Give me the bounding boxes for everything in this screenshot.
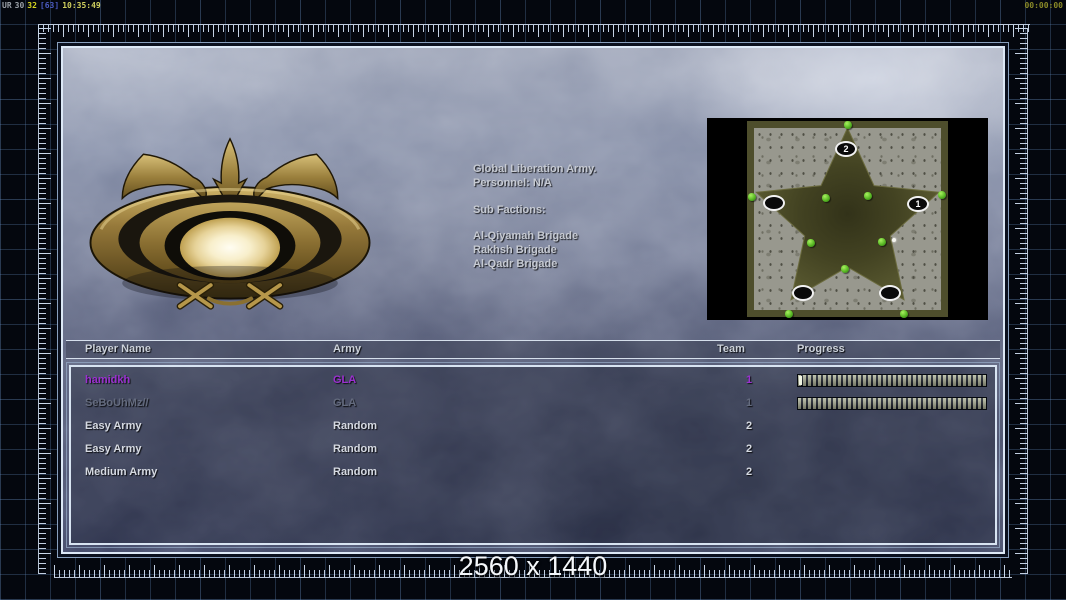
player-name: SeBoUhMz// <box>85 397 149 409</box>
player-list: hamidkh GLA 1 SeBoUhMz// GLA 1 Easy Army… <box>69 365 997 545</box>
start-position-marker <box>763 195 785 211</box>
tree-icon <box>844 121 852 129</box>
player-army: Random <box>333 466 377 478</box>
table-row: Easy Army Random 2 <box>71 415 995 438</box>
player-team: 1 <box>738 397 760 409</box>
gla-faction-logo <box>85 135 375 313</box>
player-army: GLA <box>333 374 356 386</box>
tree-icon <box>822 194 830 202</box>
match-timer: 00:00:00 <box>1024 1 1063 10</box>
table-row: hamidkh GLA 1 <box>71 369 995 392</box>
player-team: 2 <box>738 420 760 432</box>
ruler-top <box>38 24 1030 37</box>
debug-segment: UR <box>2 1 12 10</box>
loading-screen: UR3032[63]10:35:49 00:00:00 <box>0 0 1066 600</box>
debug-segment: 32 <box>27 1 37 10</box>
debug-stats-text: UR3032[63]10:35:49 <box>2 1 104 10</box>
player-army: GLA <box>333 397 356 409</box>
start-position-marker: 1 <box>907 196 929 212</box>
tree-icon <box>864 192 872 200</box>
loading-panel: Global Liberation Army. Personnel: N/A S… <box>57 42 1009 558</box>
ruler-right <box>1015 28 1028 574</box>
ruler-left <box>38 28 51 574</box>
faction-personnel: Personnel: N/A <box>473 176 596 190</box>
player-name: Easy Army <box>85 420 141 432</box>
player-list-box: hamidkh GLA 1 SeBoUhMz// GLA 1 Easy Army… <box>66 362 1000 548</box>
faction-name: Global Liberation Army. <box>473 162 596 176</box>
start-position-marker <box>879 285 901 301</box>
start-position-marker: 2 <box>835 141 857 157</box>
tree-icon <box>807 239 815 247</box>
debug-segment: 30 <box>15 1 25 10</box>
tree-icon <box>878 238 886 246</box>
tree-icon <box>900 310 908 318</box>
sub-faction: Al-Qadr Brigade <box>473 257 596 271</box>
debug-segment: 10:35:49 <box>62 1 101 10</box>
table-row: Easy Army Random 2 <box>71 438 995 461</box>
tree-icon <box>841 265 849 273</box>
table-row: Medium Army Random 2 <box>71 461 995 484</box>
sub-faction: Al-Qiyamah Brigade <box>473 229 596 243</box>
player-name: Easy Army <box>85 443 141 455</box>
player-name: Medium Army <box>85 466 157 478</box>
tree-icon <box>785 310 793 318</box>
debug-segment: [63] <box>40 1 59 10</box>
tree-icon <box>748 193 756 201</box>
tree-icon <box>938 191 946 199</box>
faction-info: Global Liberation Army. Personnel: N/A S… <box>473 162 596 271</box>
player-army: Random <box>333 443 377 455</box>
player-team: 2 <box>738 466 760 478</box>
column-progress: Progress <box>797 343 845 355</box>
sub-faction: Rakhsh Brigade <box>473 243 596 257</box>
map-center-dot <box>892 238 896 242</box>
column-player-name: Player Name <box>85 343 151 355</box>
player-name: hamidkh <box>85 374 130 386</box>
table-row: SeBoUhMz// GLA 1 <box>71 392 995 415</box>
column-army: Army <box>333 343 361 355</box>
player-team: 1 <box>738 374 760 386</box>
loading-progress-bar <box>797 374 987 387</box>
loading-progress-bar <box>797 397 987 410</box>
player-table-header: Player Name Army Team Progress <box>66 340 1000 359</box>
player-army: Random <box>333 420 377 432</box>
start-position-marker <box>792 285 814 301</box>
player-team: 2 <box>738 443 760 455</box>
loading-panel-inner: Global Liberation Army. Personnel: N/A S… <box>61 46 1005 554</box>
map-preview: 2 1 <box>707 118 988 320</box>
resolution-label: 2560 x 1440 <box>0 551 1066 582</box>
sub-factions-label: Sub Factions: <box>473 203 596 217</box>
column-team: Team <box>717 343 745 355</box>
